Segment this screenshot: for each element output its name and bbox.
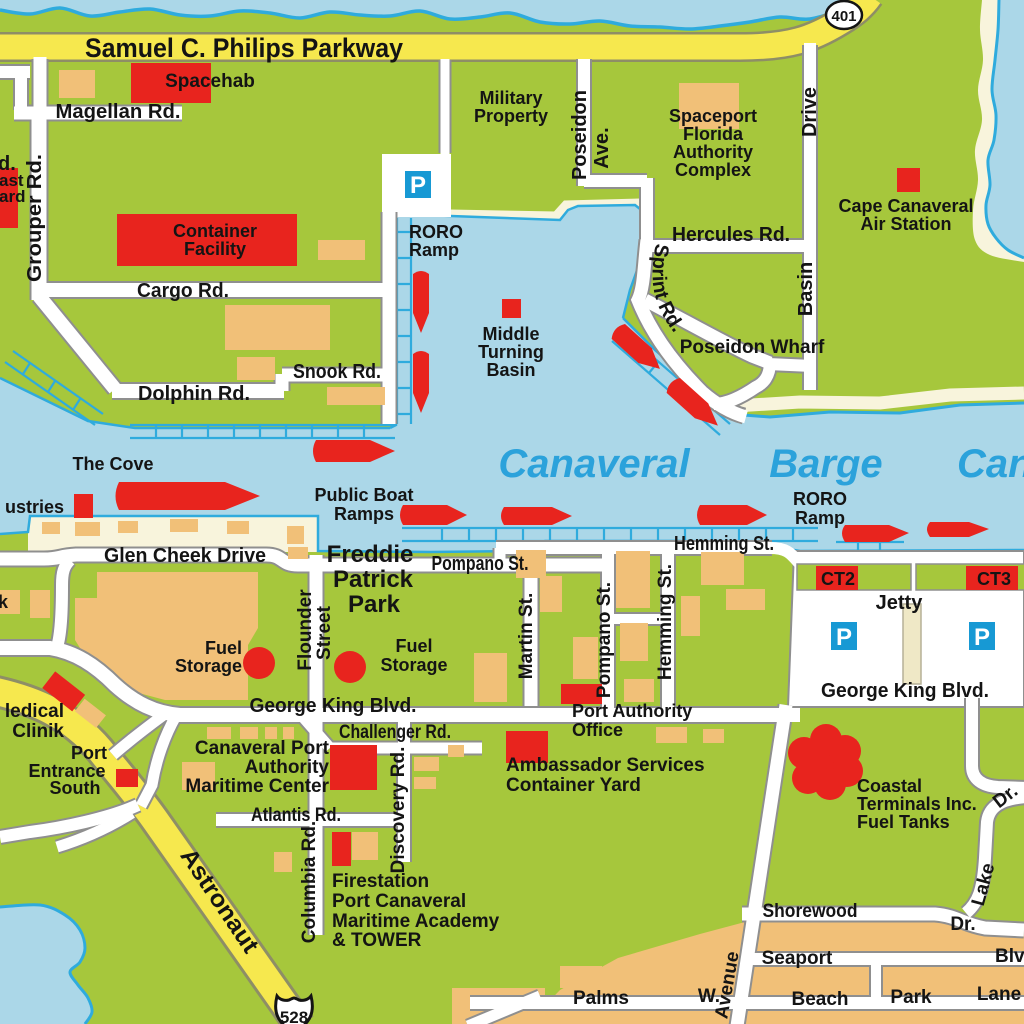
svg-text:& TOWER: & TOWER <box>332 930 422 951</box>
svg-text:Seaport: Seaport <box>762 948 833 969</box>
svg-text:Ramp: Ramp <box>795 508 845 528</box>
svg-text:Fuel Tanks: Fuel Tanks <box>857 812 950 832</box>
svg-text:George King Blvd.: George King Blvd. <box>250 695 417 717</box>
svg-text:P: P <box>410 172 426 199</box>
svg-text:Clinik: Clinik <box>12 721 64 742</box>
svg-text:Middle: Middle <box>483 324 540 344</box>
svg-text:Cape Canaveral: Cape Canaveral <box>838 196 973 216</box>
svg-text:Storage: Storage <box>175 656 242 676</box>
svg-text:Park: Park <box>890 987 932 1008</box>
svg-text:Drive: Drive <box>799 87 821 137</box>
svg-text:528: 528 <box>280 1008 308 1024</box>
svg-text:Maritime Center: Maritime Center <box>185 776 329 797</box>
svg-text:Terminals Inc.: Terminals Inc. <box>857 794 977 814</box>
svg-text:Blvd: Blvd <box>995 946 1024 967</box>
svg-text:The Cove: The Cove <box>72 454 153 474</box>
svg-text:Ramps: Ramps <box>334 504 394 524</box>
svg-text:Magellan Rd.: Magellan Rd. <box>56 101 181 123</box>
svg-text:k: k <box>0 592 9 612</box>
svg-text:Coastal: Coastal <box>857 776 922 796</box>
svg-text:Container: Container <box>173 221 257 241</box>
svg-text:Air Station: Air Station <box>860 214 951 234</box>
svg-text:Turning: Turning <box>478 342 544 362</box>
svg-text:Florida: Florida <box>683 124 744 144</box>
svg-text:Office: Office <box>572 720 623 740</box>
svg-text:CT2: CT2 <box>821 569 855 589</box>
svg-text:Lane: Lane <box>977 984 1021 1005</box>
svg-text:P: P <box>974 624 990 651</box>
svg-text:Discovery Rd.: Discovery Rd. <box>388 747 409 874</box>
svg-text:Container Yard: Container Yard <box>506 775 641 796</box>
svg-text:Grouper Rd.: Grouper Rd. <box>24 154 46 282</box>
svg-text:Hemming St.: Hemming St. <box>674 533 774 555</box>
svg-text:Beach: Beach <box>791 989 848 1010</box>
svg-text:Columbia Rd.: Columbia Rd. <box>299 821 320 943</box>
svg-text:Authority: Authority <box>245 757 330 778</box>
svg-text:Flounder: Flounder <box>295 589 316 671</box>
svg-text:Street: Street <box>314 605 335 660</box>
svg-text:P: P <box>836 624 852 651</box>
svg-text:Firestation: Firestation <box>332 871 429 892</box>
svg-text:Hercules Rd.: Hercules Rd. <box>672 224 790 246</box>
svg-text:Freddie: Freddie <box>327 541 414 568</box>
svg-text:Snook Rd.: Snook Rd. <box>293 361 381 383</box>
svg-text:Port Authority: Port Authority <box>572 701 692 721</box>
svg-text:Pompano St.: Pompano St. <box>432 553 529 575</box>
svg-text:401: 401 <box>831 8 856 25</box>
svg-text:CT3: CT3 <box>977 569 1011 589</box>
svg-text:Hemming St.: Hemming St. <box>655 564 676 680</box>
svg-text:Public Boat: Public Boat <box>314 485 413 505</box>
svg-text:Authority: Authority <box>673 142 753 162</box>
svg-text:Glen Cheek Drive: Glen Cheek Drive <box>104 545 266 567</box>
svg-text:Jetty: Jetty <box>876 592 924 614</box>
svg-text:Patrick: Patrick <box>333 566 414 593</box>
svg-text:Ambassador Services: Ambassador Services <box>506 755 705 776</box>
svg-text:Atlantis Rd.: Atlantis Rd. <box>251 805 341 826</box>
svg-text:ledical: ledical <box>5 701 64 722</box>
svg-text:Port Canaveral: Port Canaveral <box>332 891 466 912</box>
svg-text:Basin: Basin <box>486 360 535 380</box>
svg-text:Challenger Rd.: Challenger Rd. <box>339 722 451 743</box>
svg-text:Cana: Cana <box>957 442 1024 486</box>
svg-text:Canaveral Port: Canaveral Port <box>195 738 330 759</box>
svg-text:Maritime Academy: Maritime Academy <box>332 911 500 932</box>
svg-text:Ramp: Ramp <box>409 240 459 260</box>
svg-text:Shorewood: Shorewood <box>763 901 858 922</box>
svg-text:Poseidon: Poseidon <box>569 90 591 180</box>
svg-text:Park: Park <box>348 591 401 618</box>
svg-text:Storage: Storage <box>380 655 447 675</box>
svg-text:Palms: Palms <box>573 988 629 1009</box>
svg-text:Dolphin Rd.: Dolphin Rd. <box>138 383 250 405</box>
svg-text:Spacehab: Spacehab <box>165 71 255 92</box>
svg-text:George King Blvd.: George King Blvd. <box>821 680 989 702</box>
svg-text:Military: Military <box>479 88 542 108</box>
svg-text:Fuel: Fuel <box>395 636 432 656</box>
svg-text:Cargo Rd.: Cargo Rd. <box>137 280 229 302</box>
svg-text:RORO: RORO <box>409 222 463 242</box>
svg-text:ustries: ustries <box>5 497 64 517</box>
svg-text:ard: ard <box>0 187 25 206</box>
svg-text:South: South <box>50 778 101 798</box>
svg-text:Samuel C. Philips Parkway: Samuel C. Philips Parkway <box>85 33 403 63</box>
svg-text:Poseidon Wharf: Poseidon Wharf <box>680 337 825 358</box>
svg-text:Fuel: Fuel <box>205 638 242 658</box>
svg-text:Ave.: Ave. <box>591 127 613 169</box>
svg-text:Barge: Barge <box>769 442 882 486</box>
svg-text:Spaceport: Spaceport <box>669 106 757 126</box>
svg-text:Facility: Facility <box>184 239 246 259</box>
svg-text:Dr.: Dr. <box>950 914 975 935</box>
svg-text:Pompano St.: Pompano St. <box>594 582 615 698</box>
svg-text:Canaveral: Canaveral <box>498 442 690 486</box>
svg-text:Complex: Complex <box>675 160 751 180</box>
svg-text:Property: Property <box>474 106 548 126</box>
svg-text:W.: W. <box>698 986 720 1007</box>
svg-text:Port: Port <box>71 743 107 763</box>
svg-text:Martin St.: Martin St. <box>516 593 537 680</box>
svg-text:Basin: Basin <box>795 262 817 316</box>
svg-text:RORO: RORO <box>793 489 847 509</box>
